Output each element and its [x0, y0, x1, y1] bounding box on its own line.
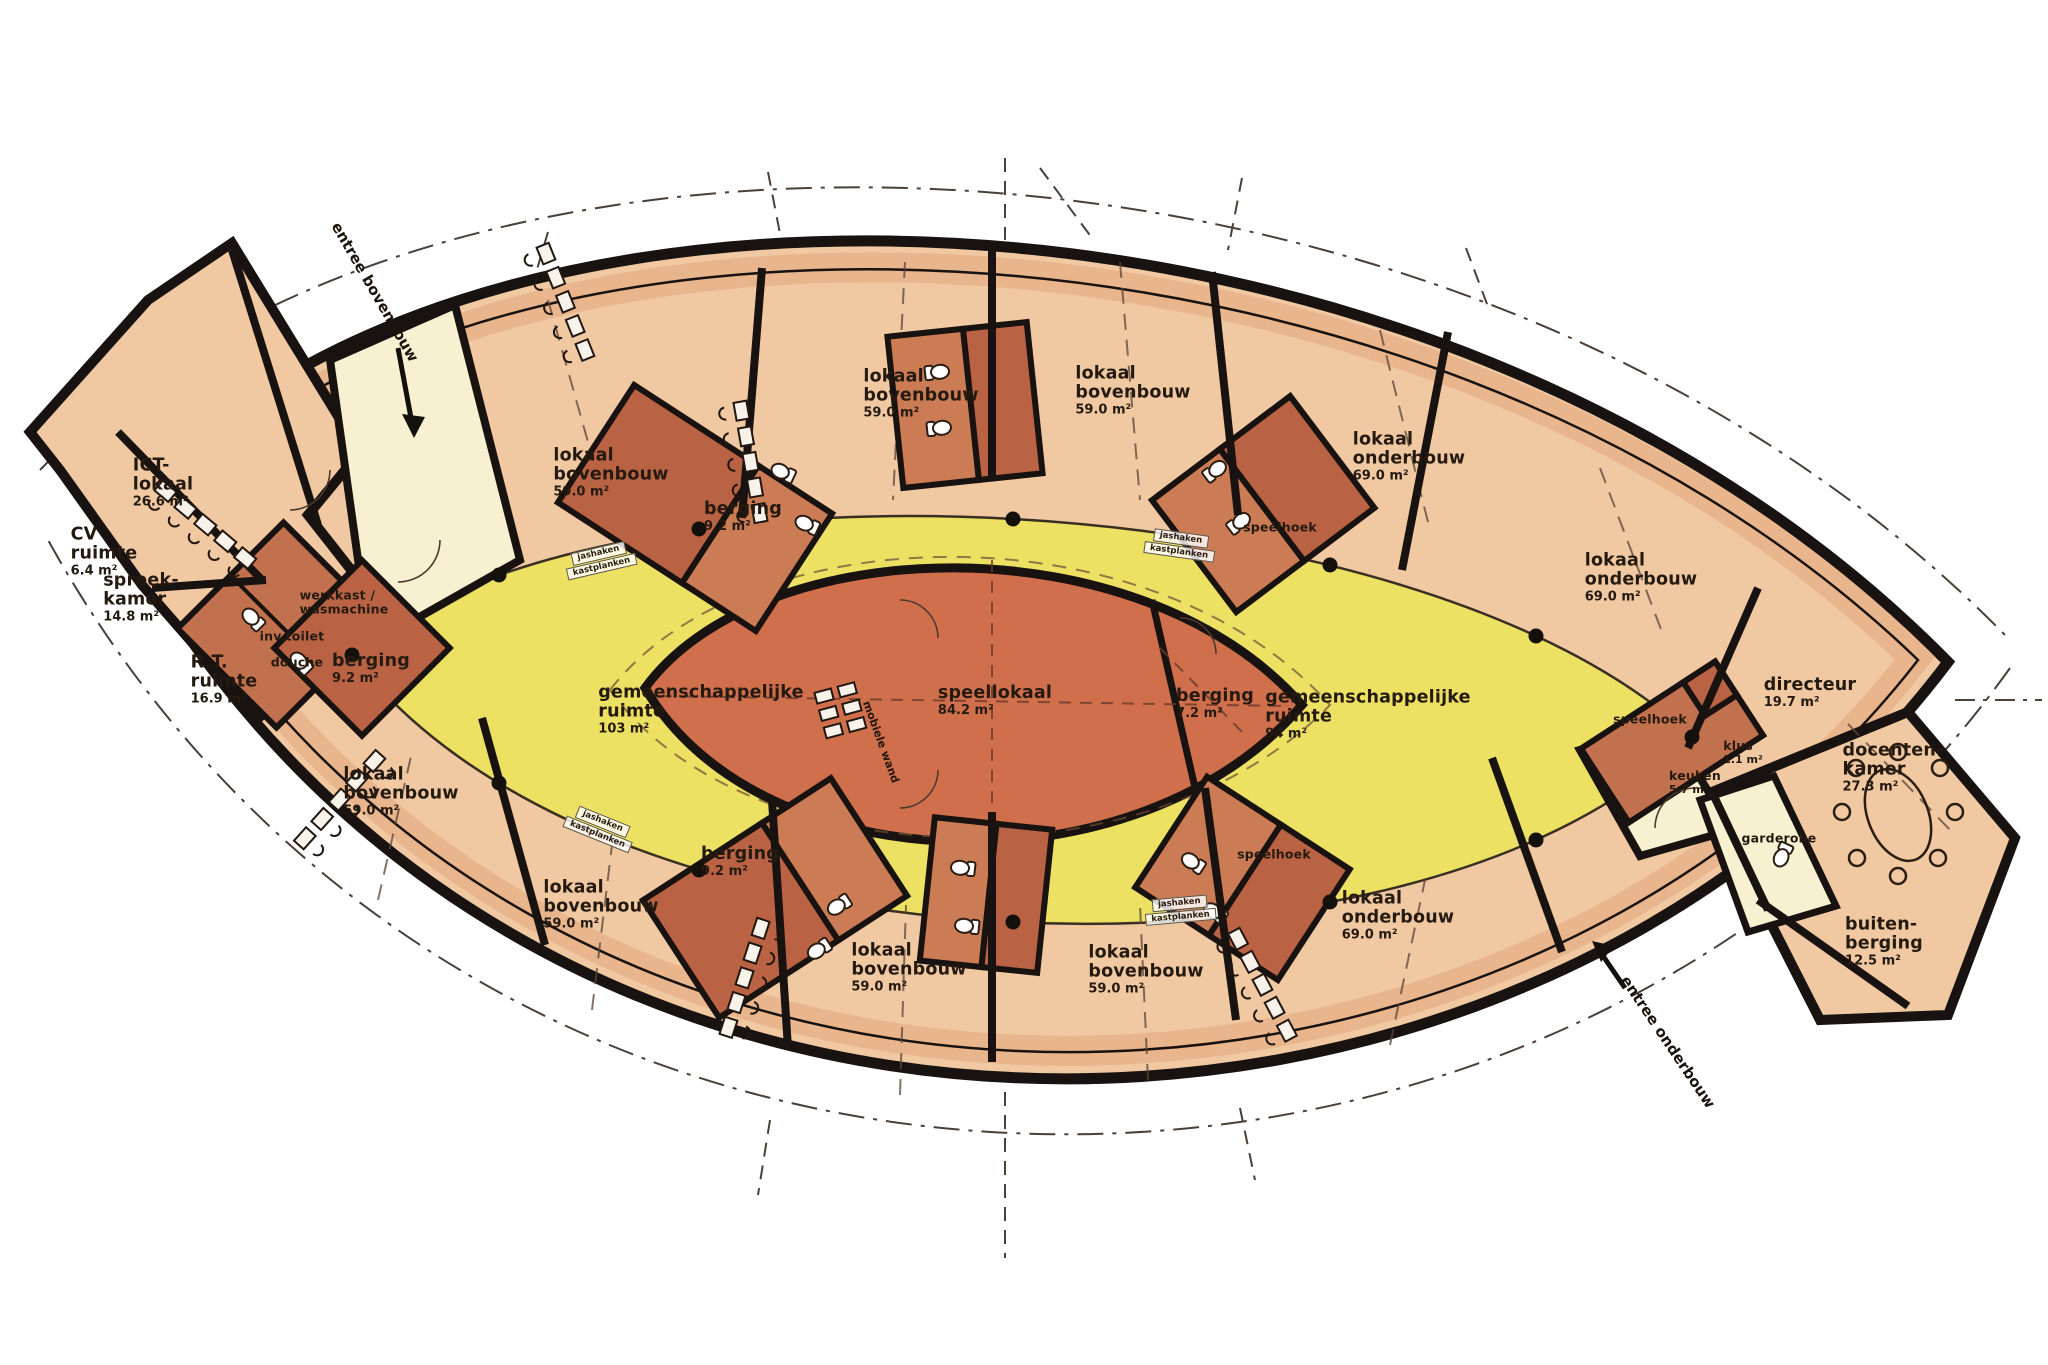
floor-plan-drawing — [0, 0, 2048, 1365]
service-block-bottom-middle — [920, 817, 1052, 973]
service-block-top-middle — [887, 322, 1042, 488]
floor-plan-stage: CV ruimte6.4 m² ICT- lokaal26.6 m² spree… — [0, 0, 2048, 1365]
